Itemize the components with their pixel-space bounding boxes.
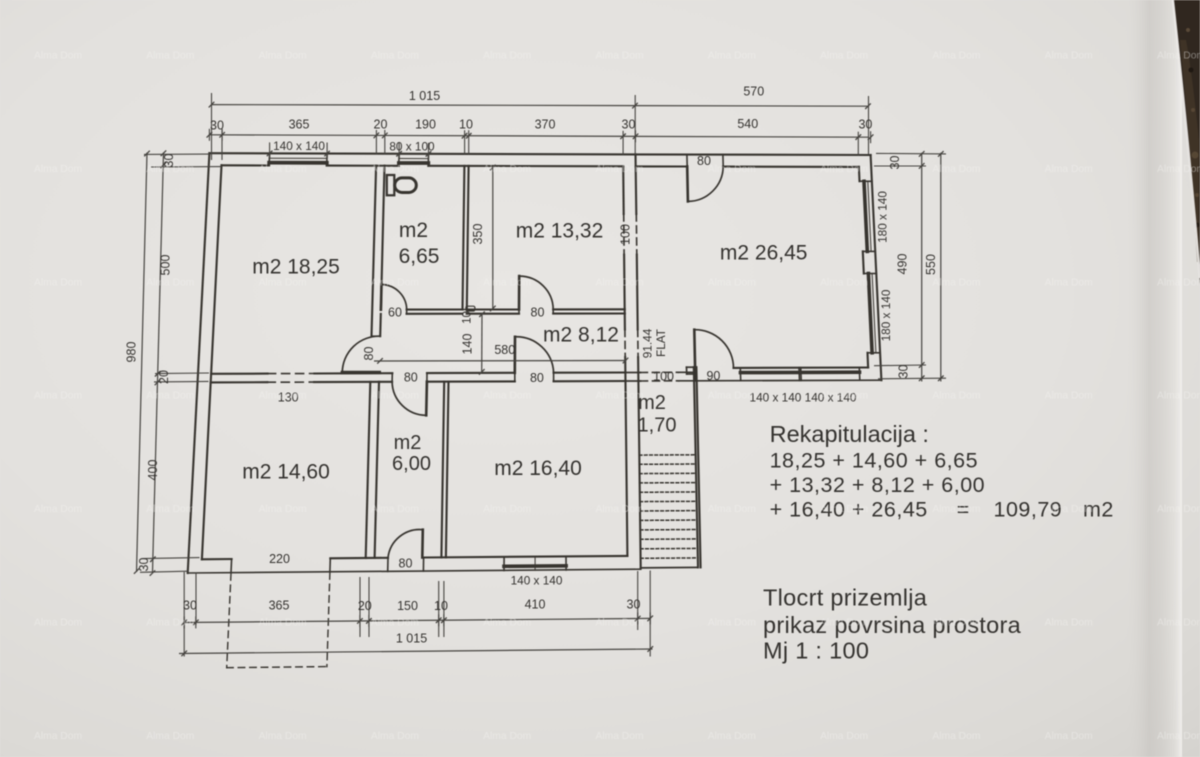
svg-text:90: 90 — [706, 369, 720, 383]
svg-text:Alma Dom: Alma Dom — [1157, 731, 1200, 742]
svg-text:Alma Dom: Alma Dom — [820, 164, 868, 175]
svg-text:Alma Dom: Alma Dom — [820, 731, 868, 742]
svg-text:180 x 140: 180 x 140 — [879, 289, 893, 341]
svg-text:Alma Dom: Alma Dom — [34, 504, 82, 515]
svg-text:20: 20 — [157, 370, 171, 384]
svg-text:365: 365 — [289, 118, 310, 132]
svg-text:1 015: 1 015 — [409, 89, 440, 103]
svg-text:80: 80 — [531, 306, 545, 320]
svg-text:Alma Dom: Alma Dom — [595, 731, 643, 742]
svg-text:Alma Dom: Alma Dom — [820, 391, 868, 402]
svg-text:Alma Dom: Alma Dom — [1045, 731, 1093, 742]
svg-text:Alma Dom: Alma Dom — [371, 731, 419, 742]
svg-text:Rekapitulacija :: Rekapitulacija : — [770, 421, 929, 447]
svg-text:30: 30 — [858, 118, 872, 132]
svg-text:Alma Dom: Alma Dom — [371, 51, 419, 62]
svg-text:Alma Dom: Alma Dom — [1045, 504, 1093, 515]
svg-text:Alma Dom: Alma Dom — [146, 391, 194, 402]
svg-text:Alma Dom: Alma Dom — [1157, 504, 1200, 515]
svg-text:Alma Dom: Alma Dom — [371, 164, 419, 175]
svg-text:Alma Dom: Alma Dom — [34, 391, 82, 402]
svg-text:80 x 100: 80 x 100 — [389, 140, 435, 154]
svg-text:180 x 140: 180 x 140 — [876, 191, 890, 243]
svg-text:m2 26,45: m2 26,45 — [720, 242, 808, 265]
svg-text:Alma Dom: Alma Dom — [595, 504, 643, 515]
svg-text:Alma Dom: Alma Dom — [932, 391, 980, 402]
svg-text:m2 13,32: m2 13,32 — [516, 220, 604, 243]
svg-text:Alma Dom: Alma Dom — [34, 164, 82, 175]
svg-text:Alma Dom: Alma Dom — [483, 277, 531, 288]
svg-text:Alma Dom: Alma Dom — [1157, 277, 1200, 288]
svg-text:570: 570 — [743, 85, 764, 99]
svg-text:Alma Dom: Alma Dom — [483, 164, 531, 175]
svg-text:Alma Dom: Alma Dom — [146, 731, 194, 742]
svg-text:Alma Dom: Alma Dom — [371, 277, 419, 288]
svg-text:Alma Dom: Alma Dom — [1045, 618, 1093, 629]
svg-text:30: 30 — [183, 599, 197, 613]
svg-text:Alma Dom: Alma Dom — [483, 504, 531, 515]
svg-text:Alma Dom: Alma Dom — [259, 277, 307, 288]
svg-text:Alma Dom: Alma Dom — [146, 618, 194, 629]
svg-text:550: 550 — [924, 254, 938, 275]
svg-text:80: 80 — [404, 371, 418, 385]
svg-text:Alma Dom: Alma Dom — [1157, 164, 1200, 175]
svg-text:980: 980 — [125, 342, 139, 363]
svg-text:500: 500 — [159, 255, 173, 276]
svg-text:Alma Dom: Alma Dom — [595, 277, 643, 288]
svg-text:350: 350 — [471, 224, 485, 245]
svg-text:190: 190 — [415, 118, 436, 132]
svg-text:Alma Dom: Alma Dom — [1157, 391, 1200, 402]
svg-text:220: 220 — [269, 552, 290, 566]
svg-text:400: 400 — [146, 460, 160, 481]
svg-text:Tlocrt prizemlja: Tlocrt prizemlja — [763, 585, 928, 611]
svg-text:Alma Dom: Alma Dom — [708, 164, 756, 175]
svg-text:Alma Dom: Alma Dom — [595, 164, 643, 175]
svg-text:6,00: 6,00 — [392, 453, 431, 475]
svg-text:Alma Dom: Alma Dom — [1045, 277, 1093, 288]
svg-text:20: 20 — [374, 118, 388, 132]
svg-text:Alma Dom: Alma Dom — [595, 618, 643, 629]
svg-text:6,65: 6,65 — [399, 245, 440, 268]
svg-text:100: 100 — [619, 224, 633, 245]
svg-text:Alma Dom: Alma Dom — [932, 618, 980, 629]
svg-text:Mj 1 : 100: Mj 1 : 100 — [763, 638, 869, 664]
svg-text:Alma Dom: Alma Dom — [932, 51, 980, 62]
svg-text:150: 150 — [397, 599, 418, 613]
svg-text:1,70: 1,70 — [638, 415, 677, 437]
svg-text:Alma Dom: Alma Dom — [708, 618, 756, 629]
svg-text:Alma Dom: Alma Dom — [483, 391, 531, 402]
svg-text:80: 80 — [399, 557, 413, 571]
svg-text:370: 370 — [535, 118, 556, 132]
svg-text:Alma Dom: Alma Dom — [34, 51, 82, 62]
svg-text:1 015: 1 015 — [396, 632, 427, 646]
svg-text:Alma Dom: Alma Dom — [371, 391, 419, 402]
svg-text:Alma Dom: Alma Dom — [708, 51, 756, 62]
svg-text:Alma Dom: Alma Dom — [820, 504, 868, 515]
svg-text:30: 30 — [888, 156, 902, 170]
svg-text:490: 490 — [896, 254, 910, 275]
svg-text:Alma Dom: Alma Dom — [932, 504, 980, 515]
svg-text:+ 13,32 + 8,12 + 6,00: + 13,32 + 8,12 + 6,00 — [770, 473, 986, 497]
svg-text:580: 580 — [494, 343, 515, 357]
svg-text:Alma Dom: Alma Dom — [259, 731, 307, 742]
svg-text:10: 10 — [462, 311, 474, 324]
svg-text:m2 8,12: m2 8,12 — [543, 324, 619, 347]
svg-text:540: 540 — [737, 117, 758, 131]
svg-text:Alma Dom: Alma Dom — [259, 618, 307, 629]
svg-text:80: 80 — [530, 371, 544, 385]
svg-text:Alma Dom: Alma Dom — [932, 731, 980, 742]
svg-text:Alma Dom: Alma Dom — [1157, 51, 1200, 62]
svg-text:m2: m2 — [399, 219, 428, 242]
svg-text:Alma Dom: Alma Dom — [259, 391, 307, 402]
svg-text:365: 365 — [269, 599, 290, 613]
svg-text:Alma Dom: Alma Dom — [708, 391, 756, 402]
svg-text:Alma Dom: Alma Dom — [371, 618, 419, 629]
svg-text:Alma Dom: Alma Dom — [146, 51, 194, 62]
svg-text:Alma Dom: Alma Dom — [820, 618, 868, 629]
svg-text:140: 140 — [461, 334, 475, 355]
svg-text:30: 30 — [627, 598, 641, 612]
svg-text:Alma Dom: Alma Dom — [708, 277, 756, 288]
svg-text:Alma Dom: Alma Dom — [259, 164, 307, 175]
svg-text:FLAT: FLAT — [654, 329, 668, 357]
svg-text:10: 10 — [434, 599, 448, 613]
svg-text:m2 14,60: m2 14,60 — [242, 461, 330, 484]
svg-text:Alma Dom: Alma Dom — [146, 164, 194, 175]
svg-text:Alma Dom: Alma Dom — [259, 504, 307, 515]
svg-text:10: 10 — [459, 118, 473, 132]
svg-text:30: 30 — [622, 118, 636, 132]
svg-text:Alma Dom: Alma Dom — [1045, 164, 1093, 175]
svg-text:prikaz povrsina prostora: prikaz povrsina prostora — [763, 612, 1022, 638]
svg-text:Alma Dom: Alma Dom — [932, 164, 980, 175]
svg-text:Alma Dom: Alma Dom — [595, 51, 643, 62]
svg-text:Alma Dom: Alma Dom — [820, 277, 868, 288]
svg-text:m2: m2 — [394, 432, 422, 454]
svg-text:Alma Dom: Alma Dom — [932, 277, 980, 288]
svg-text:410: 410 — [525, 598, 546, 612]
svg-text:Alma Dom: Alma Dom — [259, 51, 307, 62]
svg-text:m2 18,25: m2 18,25 — [252, 256, 340, 279]
svg-text:Alma Dom: Alma Dom — [1157, 618, 1200, 629]
svg-text:Alma Dom: Alma Dom — [483, 618, 531, 629]
svg-text:Alma Dom: Alma Dom — [34, 618, 82, 629]
svg-text:Alma Dom: Alma Dom — [146, 504, 194, 515]
svg-text:Alma Dom: Alma Dom — [146, 277, 194, 288]
svg-text:Alma Dom: Alma Dom — [1045, 51, 1093, 62]
svg-text:Alma Dom: Alma Dom — [1045, 391, 1093, 402]
svg-text:Alma Dom: Alma Dom — [34, 731, 82, 742]
svg-text:18,25 + 14,60 + 6,65: 18,25 + 14,60 + 6,65 — [770, 449, 978, 473]
svg-text:Alma Dom: Alma Dom — [483, 51, 531, 62]
svg-text:60: 60 — [388, 306, 402, 320]
svg-text:140 x 140: 140 x 140 — [511, 574, 563, 588]
svg-text:Alma Dom: Alma Dom — [371, 504, 419, 515]
svg-text:m2 16,40: m2 16,40 — [494, 457, 582, 480]
svg-text:Alma Dom: Alma Dom — [708, 504, 756, 515]
svg-text:Alma Dom: Alma Dom — [595, 391, 643, 402]
svg-text:30: 30 — [210, 119, 224, 133]
svg-text:20: 20 — [358, 599, 372, 613]
svg-text:80: 80 — [362, 347, 376, 361]
svg-text:Alma Dom: Alma Dom — [820, 51, 868, 62]
svg-text:100: 100 — [653, 370, 674, 384]
svg-text:140 x 140: 140 x 140 — [273, 139, 325, 153]
svg-text:Alma Dom: Alma Dom — [34, 277, 82, 288]
svg-text:Alma Dom: Alma Dom — [483, 731, 531, 742]
svg-text:30: 30 — [137, 558, 151, 572]
svg-text:91.44: 91.44 — [641, 328, 655, 358]
svg-text:30: 30 — [897, 365, 911, 379]
svg-text:Alma Dom: Alma Dom — [708, 731, 756, 742]
